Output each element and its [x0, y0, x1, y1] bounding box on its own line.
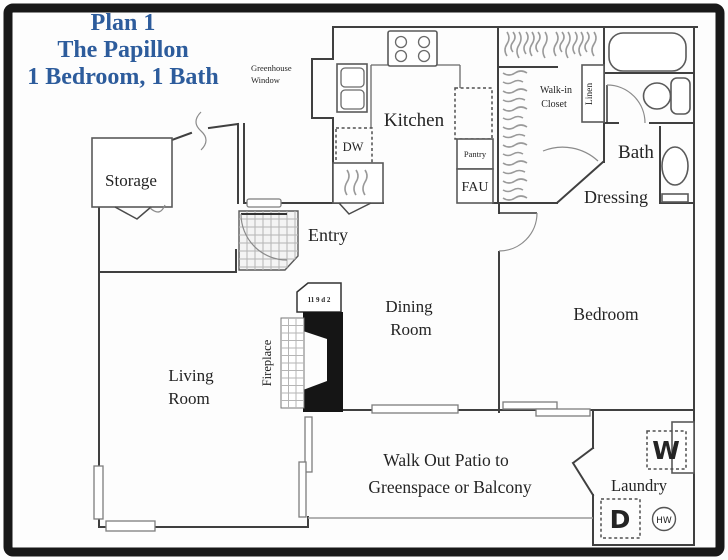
plan-title: Plan 1 The Papillon 1 Bedroom, 1 Bath: [27, 10, 219, 90]
label-patio-1: Walk Out Patio to: [383, 450, 509, 470]
storage-door-mark: [115, 207, 151, 219]
title-line-3: 1 Bedroom, 1 Bath: [27, 64, 219, 90]
label-greenhouse-1: Greenhouse: [251, 63, 292, 73]
closet-hangers-top: [505, 32, 596, 58]
dining-room: Dining Room: [372, 297, 458, 413]
laundry: W D HW Laundry: [601, 422, 694, 538]
label-dw: DW: [343, 140, 364, 154]
stove: [388, 31, 437, 66]
kitchen: DW Pantry FAU Kitchen Greenhouse Window: [251, 31, 493, 214]
label-fau: FAU: [462, 180, 489, 195]
entry-tile-floor: [239, 211, 298, 270]
fireplace-assembly: 11 9 d 2 Fireplace: [260, 283, 343, 412]
sink-shelf: [662, 194, 688, 202]
living-bottom-window: [106, 521, 155, 531]
closet-hangers-left: [503, 71, 527, 200]
pantry-upper-box: [455, 88, 492, 139]
label-fireplace: Fireplace: [260, 339, 274, 386]
label-linen: Linen: [585, 83, 595, 105]
label-laundry: Laundry: [611, 476, 668, 495]
living-left-window: [94, 466, 103, 519]
label-dressing: Dressing: [584, 187, 648, 207]
label-dryer: D: [610, 505, 631, 534]
label-dining-2: Room: [390, 320, 432, 339]
bedroom-door-swing: [499, 213, 537, 251]
label-greenhouse-2: Window: [251, 75, 281, 85]
label-bath: Bath: [618, 142, 654, 163]
coat-closet: [333, 163, 383, 203]
toilet-tank: [671, 78, 690, 114]
label-washer: W: [652, 436, 680, 465]
front-door-threshold: [247, 199, 281, 207]
label-pantry: Pantry: [464, 149, 487, 159]
fireplace-niche-label: 11 9 d 2: [308, 296, 331, 304]
patio-slider-panel: [299, 462, 306, 517]
patio: Walk Out Patio to Greenspace or Balcony: [368, 450, 532, 497]
label-living-2: Room: [168, 389, 210, 408]
dressing-door-swing: [543, 147, 598, 161]
wall-break-squiggle: [196, 112, 206, 150]
living-room: Living Room: [94, 366, 312, 531]
label-walkin-1: Walk-in: [540, 85, 572, 96]
floor-plan-canvas: Plan 1 The Papillon 1 Bedroom, 1 Bath St…: [0, 0, 728, 560]
firebox: [303, 312, 343, 412]
label-storage: Storage: [105, 171, 157, 190]
toilet-bowl: [644, 83, 671, 109]
label-dining-1: Dining: [385, 297, 433, 316]
pedestal-sink: [662, 147, 688, 185]
label-walkin-2: Closet: [541, 99, 567, 110]
bath-door-swing: [607, 85, 645, 123]
label-kitchen: Kitchen: [384, 110, 445, 131]
bedroom-slider-panel: [503, 402, 557, 409]
floor-plan-page: Plan 1 The Papillon 1 Bedroom, 1 Bath St…: [0, 0, 728, 560]
bedroom-slider-panel: [536, 409, 590, 416]
bathtub: [609, 33, 686, 71]
label-living-1: Living: [168, 366, 214, 385]
title-line-2: The Papillon: [57, 37, 188, 63]
dining-window: [372, 405, 458, 413]
label-bedroom: Bedroom: [573, 304, 639, 324]
entry-area: Entry: [239, 199, 348, 271]
coat-closet-door-mark: [339, 203, 371, 214]
storage-room: Storage: [92, 138, 172, 219]
title-line-1: Plan 1: [91, 10, 156, 36]
label-patio-2: Greenspace or Balcony: [368, 477, 532, 497]
label-hw: HW: [656, 516, 672, 526]
bedroom: Bedroom: [499, 213, 639, 416]
label-entry: Entry: [308, 225, 348, 245]
